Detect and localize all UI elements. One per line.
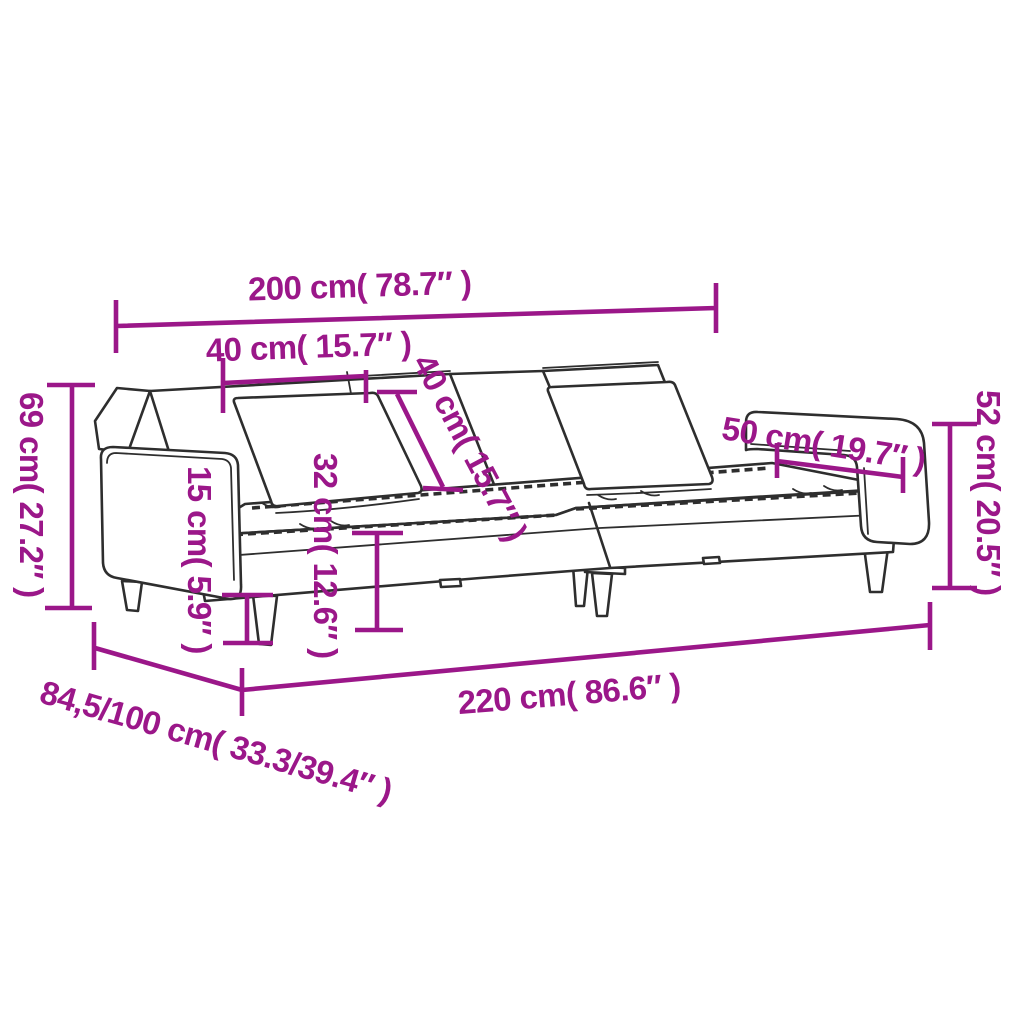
dim-label-leg-height: 15 cm( 5.9″ )	[181, 466, 218, 654]
dim-armrest-height: 52 cm( 20.5″ )	[932, 390, 1007, 596]
dim-label-inner-width: 200 cm( 78.7″ )	[247, 264, 471, 308]
dim-label-total-width: 220 cm( 86.6″ )	[456, 666, 682, 721]
dim-total-height: 69 cm( 27.2″ )	[13, 385, 95, 608]
sofa-leg-left-second	[253, 595, 277, 645]
sofa-leg-middle-front	[585, 566, 625, 616]
dim-depth-range-lines	[94, 622, 242, 690]
diagram-svg: 200 cm( 78.7″ ) 40 cm( 15.7″ ) 69 cm( 27…	[0, 0, 1024, 1024]
product-dimension-diagram: 200 cm( 78.7″ ) 40 cm( 15.7″ ) 69 cm( 27…	[0, 0, 1024, 1024]
dim-total-width: 220 cm( 86.6″ )	[242, 602, 930, 721]
seat-rail-notch-left	[440, 579, 461, 587]
dim-label-back-section: 40 cm( 15.7″ )	[205, 324, 412, 368]
dim-label-depth-range: 84,5/100 cm( 33.3/39.4″ )	[36, 673, 396, 809]
dim-total-height-lines	[45, 385, 95, 608]
seat-rail-notch-right	[703, 557, 720, 564]
dim-label-total-height: 69 cm( 27.2″ )	[13, 392, 50, 598]
backrest-left-wing	[95, 388, 150, 452]
dim-label-armrest-height: 52 cm( 20.5″ )	[970, 390, 1007, 596]
dim-label-seat-height: 32 cm( 12.6″ )	[307, 453, 344, 659]
sofa-leg-front-left	[122, 581, 142, 611]
armrest-left	[101, 447, 241, 599]
